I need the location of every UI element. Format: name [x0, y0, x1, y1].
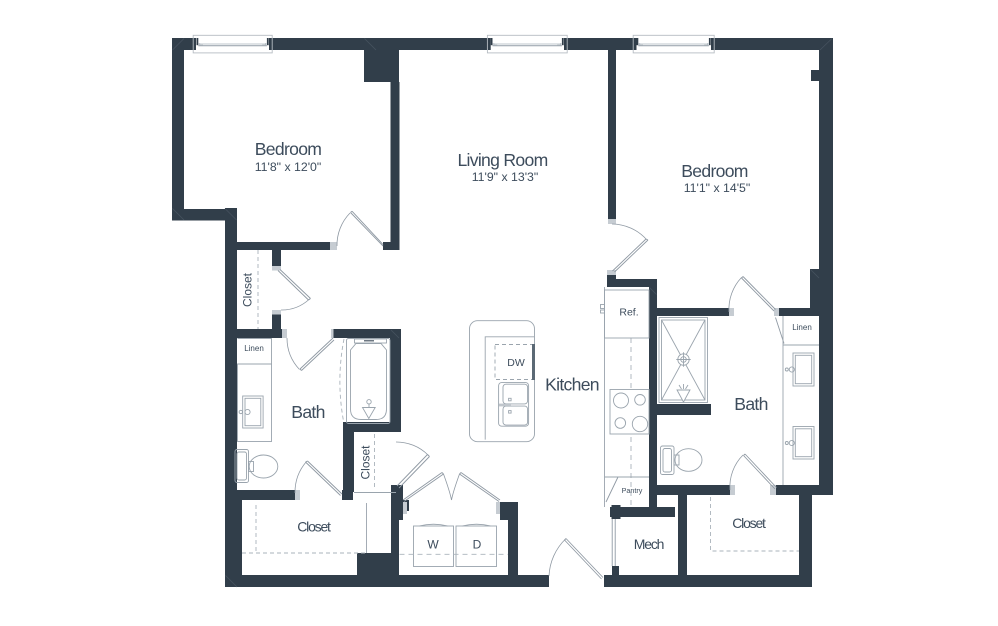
svg-text:Bedroom: Bedroom — [681, 161, 748, 181]
svg-text:Bath: Bath — [291, 402, 324, 422]
svg-text:11'1" x 14'5": 11'1" x 14'5" — [684, 181, 751, 195]
svg-text:Closet: Closet — [359, 445, 373, 480]
svg-text:Linen: Linen — [244, 344, 264, 353]
svg-text:Linen: Linen — [792, 323, 812, 332]
svg-text:Living Room: Living Room — [457, 150, 547, 170]
svg-text:D: D — [473, 538, 482, 552]
svg-text:11'9" x 13'3": 11'9" x 13'3" — [472, 170, 539, 184]
svg-text:11'8" x 12'0": 11'8" x 12'0" — [255, 160, 322, 174]
svg-text:Mech: Mech — [634, 536, 664, 552]
svg-text:Pantry: Pantry — [622, 486, 643, 495]
svg-text:Closet: Closet — [297, 519, 331, 535]
svg-text:W: W — [427, 538, 439, 552]
svg-text:Bath: Bath — [734, 394, 767, 414]
svg-text:Bedroom: Bedroom — [255, 139, 322, 159]
svg-text:Ref.: Ref. — [619, 307, 638, 319]
svg-text:Closet: Closet — [241, 272, 255, 307]
svg-text:Kitchen: Kitchen — [545, 375, 599, 395]
svg-text:Closet: Closet — [732, 515, 766, 531]
svg-text:DW: DW — [507, 357, 525, 369]
